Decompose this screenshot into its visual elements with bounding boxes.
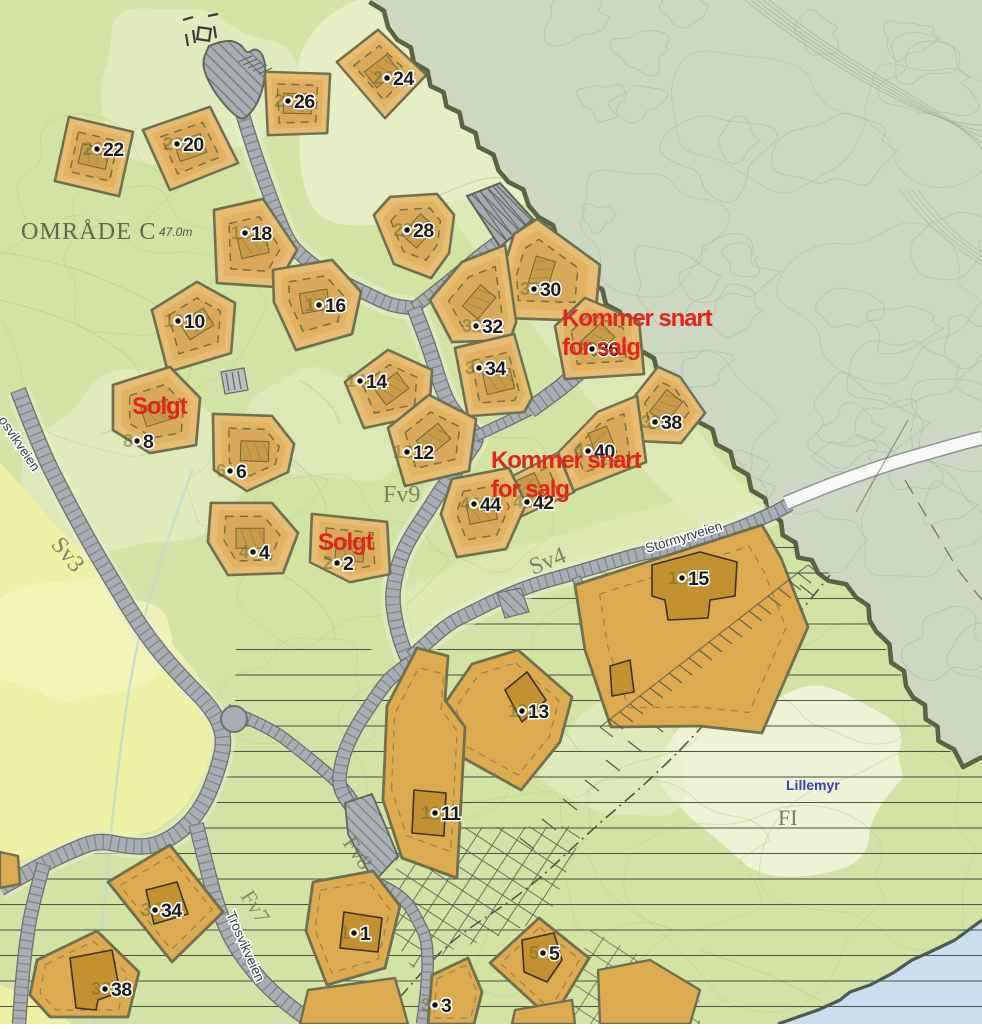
svg-text:5: 5: [529, 943, 539, 963]
svg-text:8: 8: [123, 431, 133, 451]
svg-text:4: 4: [239, 542, 249, 562]
svg-text:5: 5: [549, 943, 560, 965]
svg-text:20: 20: [183, 134, 204, 156]
svg-text:2: 2: [323, 553, 333, 573]
svg-text:14: 14: [366, 371, 387, 393]
svg-text:22: 22: [103, 139, 124, 161]
svg-text:Kommer snart: Kommer snart: [562, 305, 713, 332]
svg-text:FI: FI: [778, 805, 798, 830]
svg-text:1: 1: [360, 923, 371, 945]
svg-text:Solgt: Solgt: [132, 393, 188, 420]
svg-text:OMRÅDE C: OMRÅDE C: [21, 219, 157, 245]
svg-text:13: 13: [528, 701, 549, 723]
svg-text:4: 4: [259, 542, 270, 564]
svg-text:24: 24: [393, 68, 414, 90]
svg-text:Fv9: Fv9: [383, 482, 420, 508]
svg-text:1: 1: [340, 923, 350, 943]
svg-text:26: 26: [294, 91, 315, 113]
svg-text:3: 3: [441, 995, 452, 1017]
svg-text:10: 10: [184, 311, 205, 333]
svg-text:18: 18: [251, 223, 272, 245]
svg-text:32: 32: [482, 316, 503, 338]
svg-text:15: 15: [688, 568, 709, 590]
svg-text:2: 2: [343, 553, 354, 575]
svg-text:for salg: for salg: [491, 476, 569, 503]
svg-text:for salg: for salg: [562, 334, 640, 361]
svg-text:6: 6: [236, 461, 247, 483]
svg-text:Lillemyr: Lillemyr: [786, 777, 840, 793]
svg-text:34: 34: [485, 358, 506, 380]
svg-text:8: 8: [143, 431, 154, 453]
svg-text:38: 38: [111, 979, 132, 1001]
svg-text:Kommer snart: Kommer snart: [491, 447, 642, 474]
svg-text:28: 28: [413, 220, 434, 242]
svg-text:12: 12: [413, 442, 434, 464]
svg-text:3: 3: [421, 995, 431, 1015]
svg-text:16: 16: [325, 295, 346, 317]
svg-text:34: 34: [161, 900, 182, 922]
svg-text:6: 6: [216, 461, 226, 481]
svg-text:38: 38: [661, 412, 682, 434]
svg-text:47.0m: 47.0m: [159, 225, 192, 239]
svg-text:30: 30: [540, 279, 561, 301]
svg-text:Solgt: Solgt: [318, 529, 374, 556]
svg-text:11: 11: [441, 803, 461, 825]
